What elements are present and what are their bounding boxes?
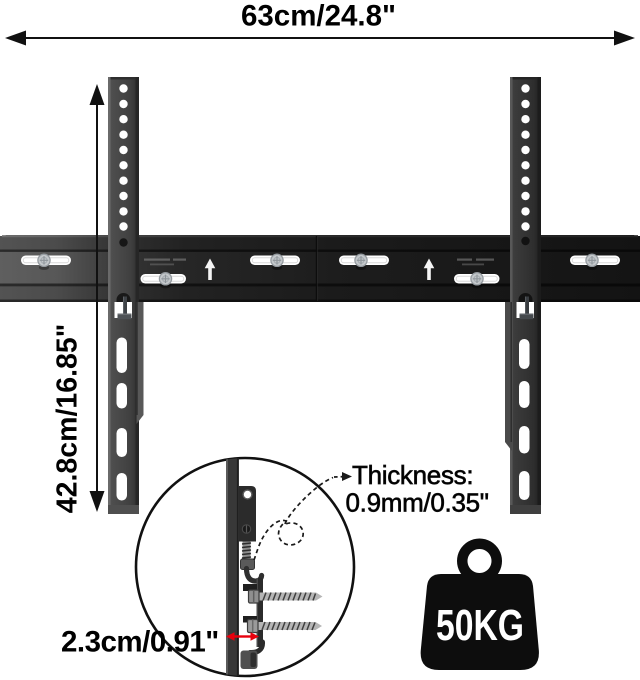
svg-text:Thickness:: Thickness: <box>352 460 473 490</box>
svg-text:50KG: 50KG <box>436 601 524 650</box>
svg-text:63cm/24.8": 63cm/24.8" <box>241 0 396 33</box>
svg-text:42.8cm/16.85": 42.8cm/16.85" <box>52 324 84 513</box>
svg-text:0.9mm/0.35": 0.9mm/0.35" <box>346 488 489 518</box>
svg-text:2.3cm/0.91": 2.3cm/0.91" <box>61 626 219 659</box>
